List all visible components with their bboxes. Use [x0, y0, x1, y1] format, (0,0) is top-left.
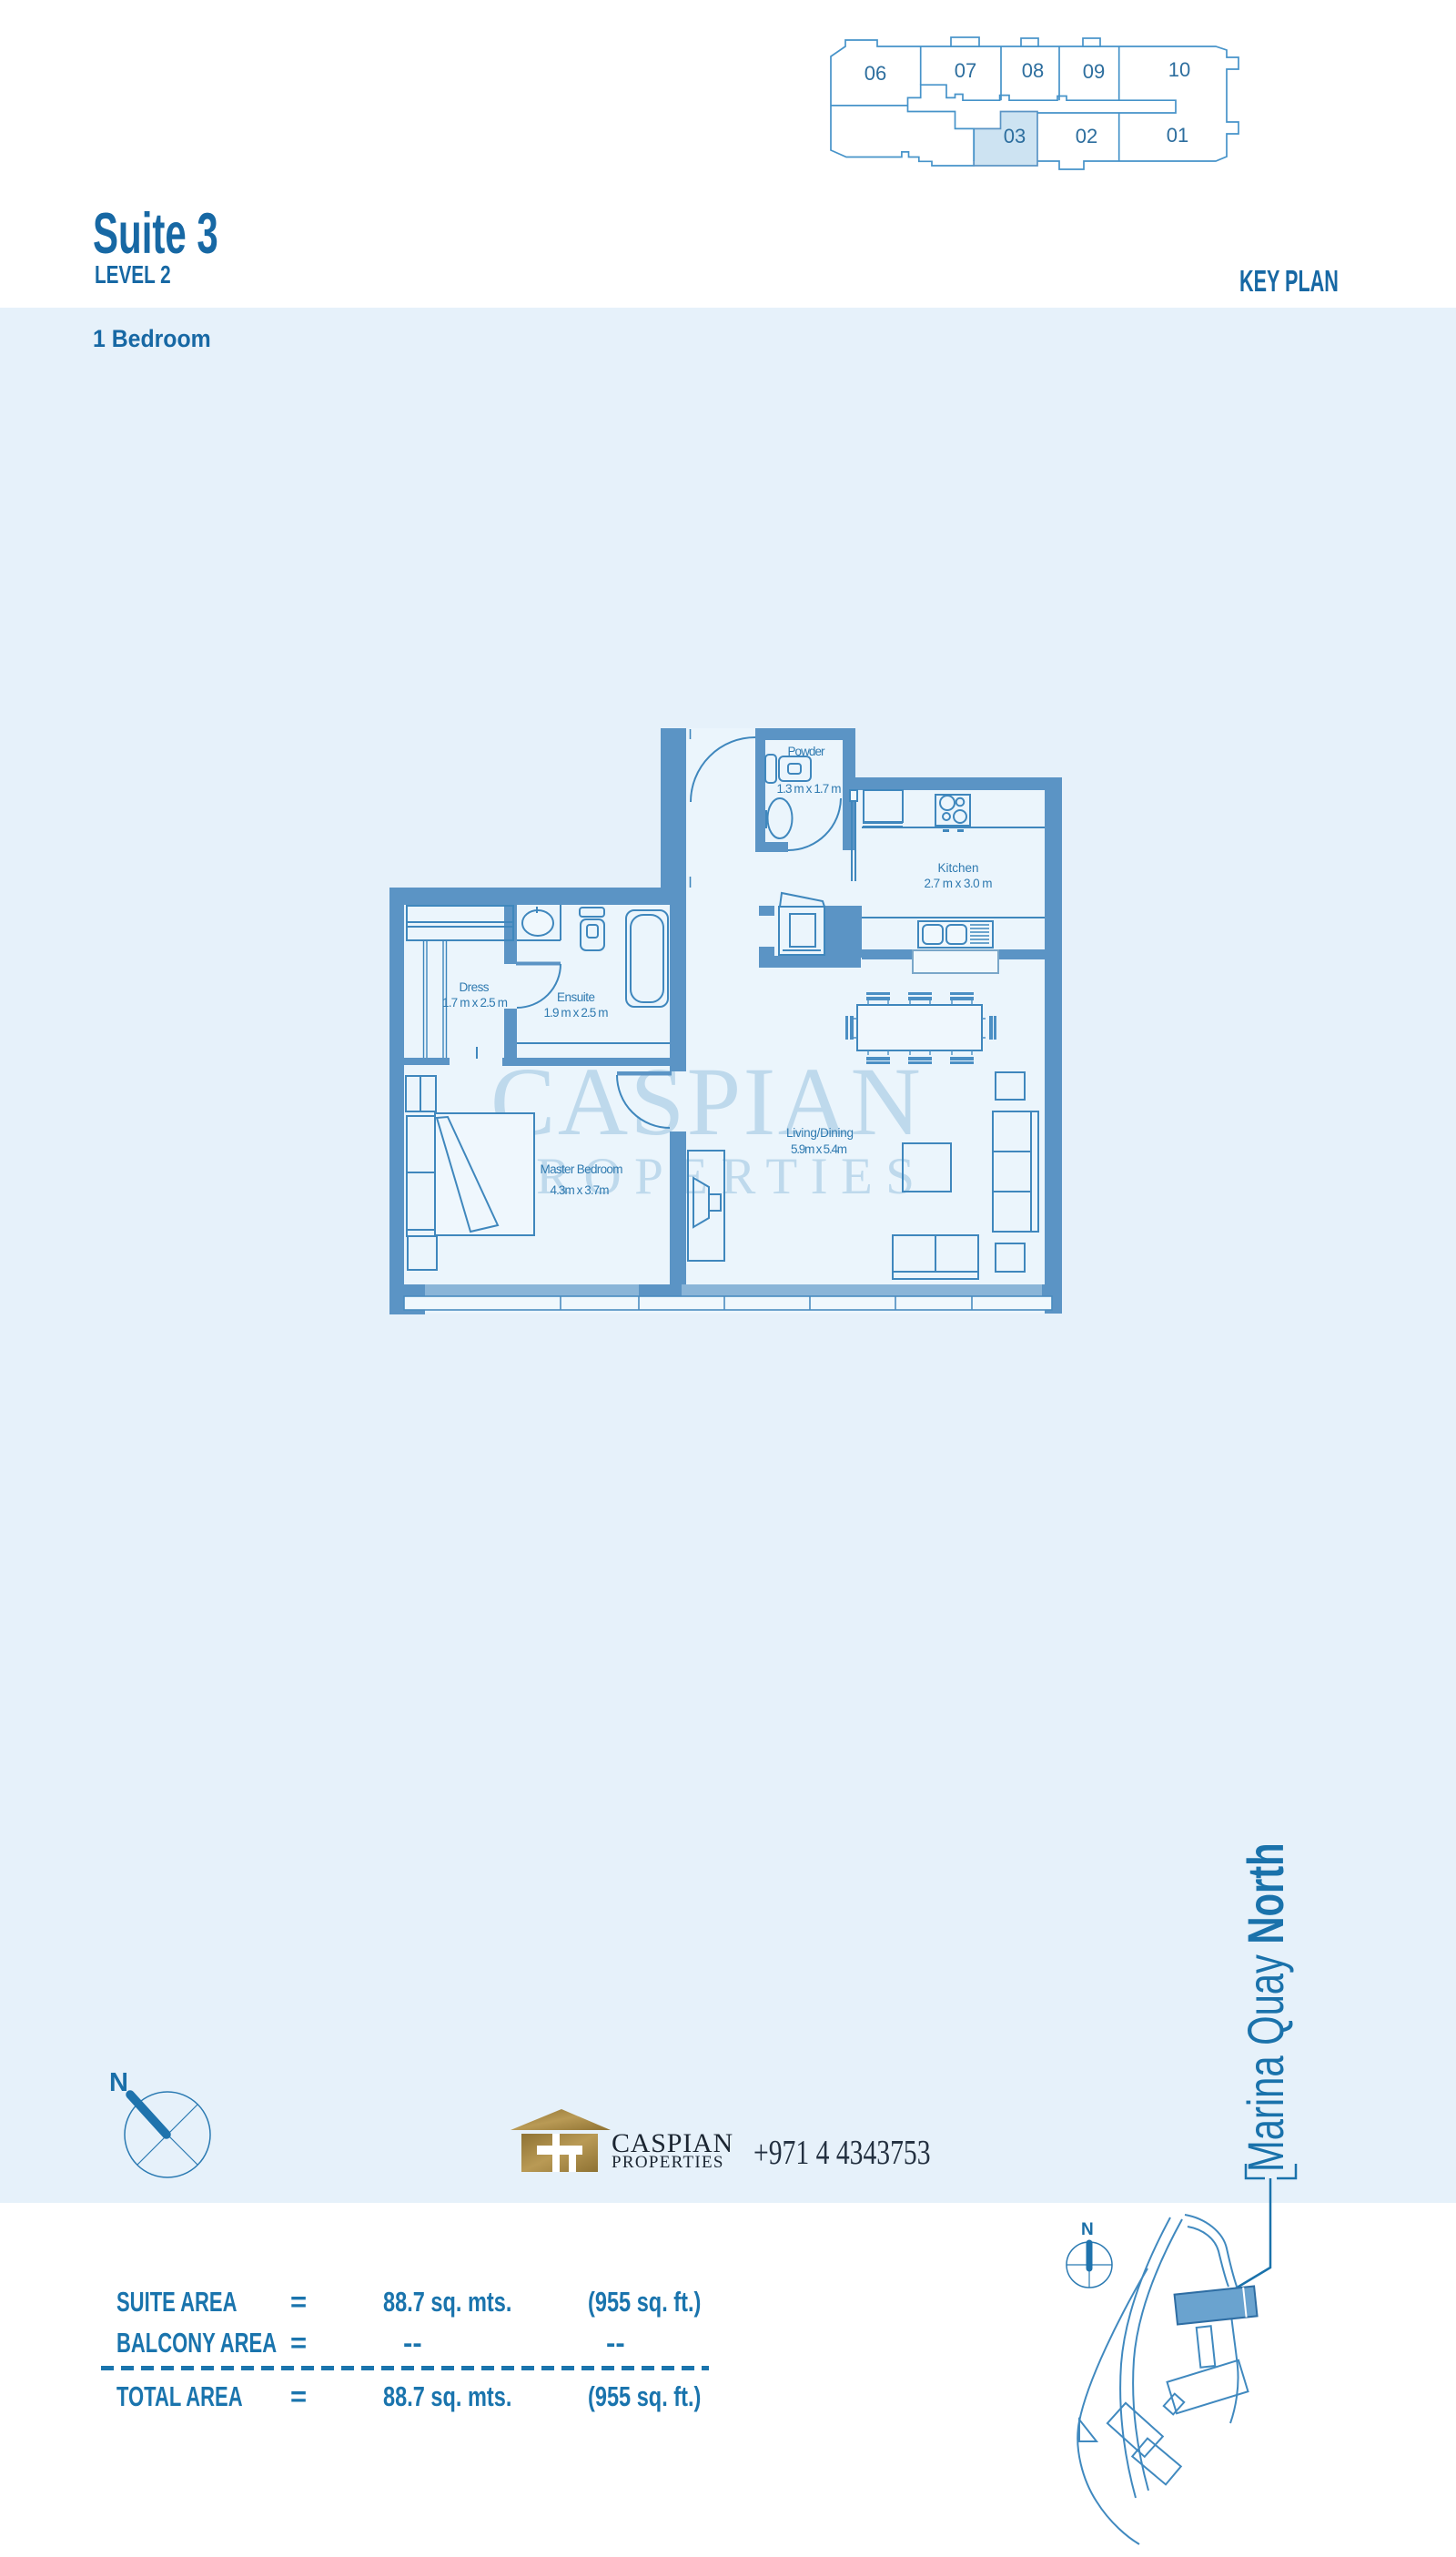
svg-text:10: 10 — [1168, 58, 1190, 81]
svg-text:03: 03 — [1004, 125, 1026, 147]
svg-text:5.9m x 5.4m: 5.9m x 5.4m — [791, 1142, 847, 1156]
svg-text:Dress: Dress — [460, 980, 490, 994]
svg-text:08: 08 — [1022, 59, 1044, 82]
svg-text:1.3 m x 1.7 m: 1.3 m x 1.7 m — [777, 782, 842, 796]
svg-text:4.3m x 3.7m: 4.3m x 3.7m — [551, 1183, 610, 1197]
svg-text:Kitchen: Kitchen — [938, 861, 979, 875]
svg-text:1.7 m x 2.5 m: 1.7 m x 2.5 m — [442, 996, 508, 1010]
svg-text:Ensuite: Ensuite — [557, 990, 595, 1004]
svg-text:Master Bedroom: Master Bedroom — [541, 1162, 623, 1176]
svg-text:N: N — [1081, 2220, 1094, 2239]
svg-text:PROPERTIES: PROPERTIES — [612, 2153, 724, 2172]
svg-text:N: N — [109, 2068, 128, 2097]
svg-text:Living/Dining: Living/Dining — [786, 1126, 854, 1140]
svg-text:06: 06 — [864, 62, 886, 85]
svg-text:01: 01 — [1167, 124, 1188, 147]
svg-text:07: 07 — [955, 59, 976, 82]
svg-text:02: 02 — [1076, 125, 1097, 147]
svg-text:2.7 m x 3.0 m: 2.7 m x 3.0 m — [925, 877, 993, 890]
svg-text:Powder: Powder — [788, 745, 826, 758]
svg-text:09: 09 — [1083, 60, 1105, 83]
svg-text:1.9 m x 2.5 m: 1.9 m x 2.5 m — [544, 1006, 609, 1020]
